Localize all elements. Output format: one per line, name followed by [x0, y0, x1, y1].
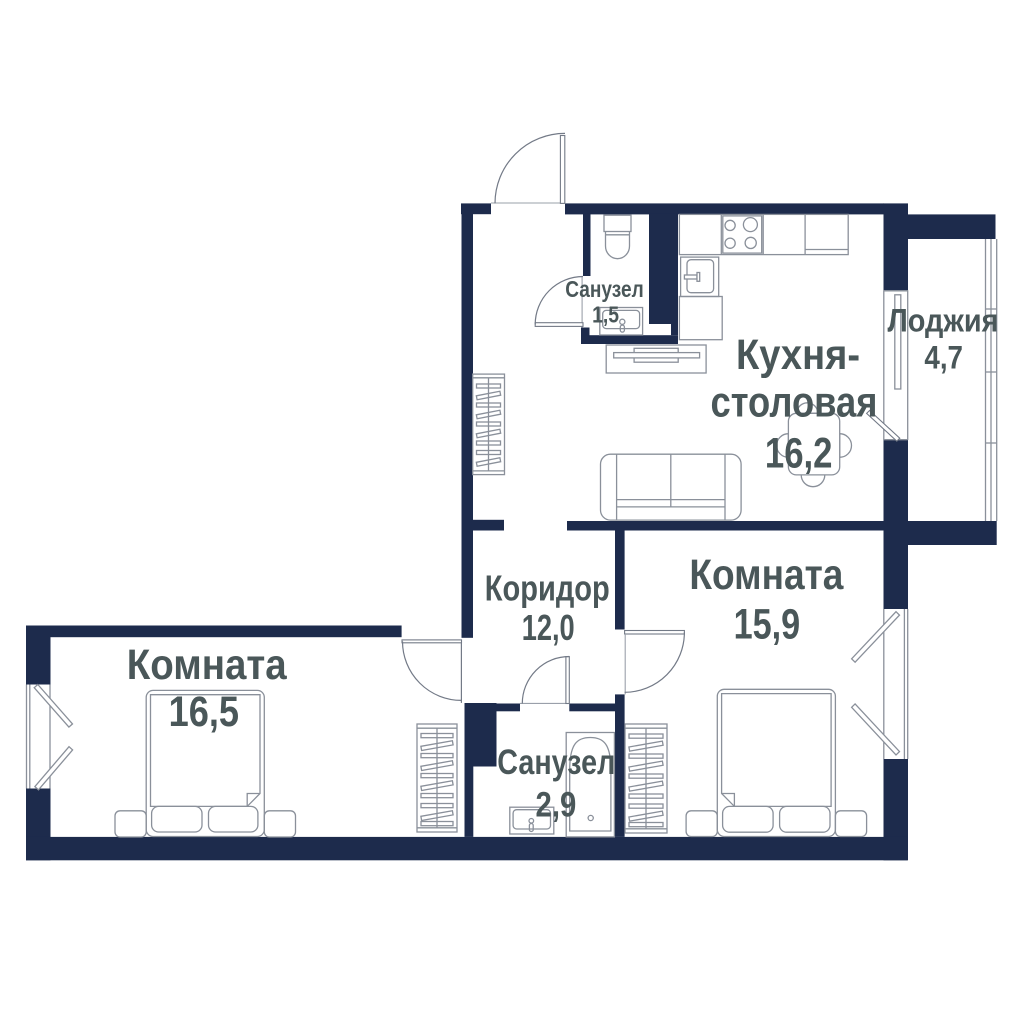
svg-text:Коридор: Коридор	[485, 567, 610, 608]
svg-text:2,9: 2,9	[536, 785, 577, 824]
svg-text:Санузел: Санузел	[565, 276, 644, 302]
svg-text:столовая: столовая	[711, 378, 878, 426]
svg-text:16,5: 16,5	[169, 688, 239, 736]
svg-text:Кухня-: Кухня-	[736, 331, 860, 379]
svg-text:Лоджия: Лоджия	[888, 303, 999, 339]
svg-text:Санузел: Санузел	[497, 743, 615, 782]
svg-text:Комната: Комната	[127, 641, 288, 689]
svg-text:12,0: 12,0	[522, 607, 575, 648]
svg-text:1,5: 1,5	[592, 302, 619, 328]
svg-text:Комната: Комната	[689, 551, 844, 599]
svg-text:15,9: 15,9	[734, 600, 801, 648]
svg-text:4,7: 4,7	[924, 340, 963, 376]
svg-text:16,2: 16,2	[765, 430, 833, 478]
